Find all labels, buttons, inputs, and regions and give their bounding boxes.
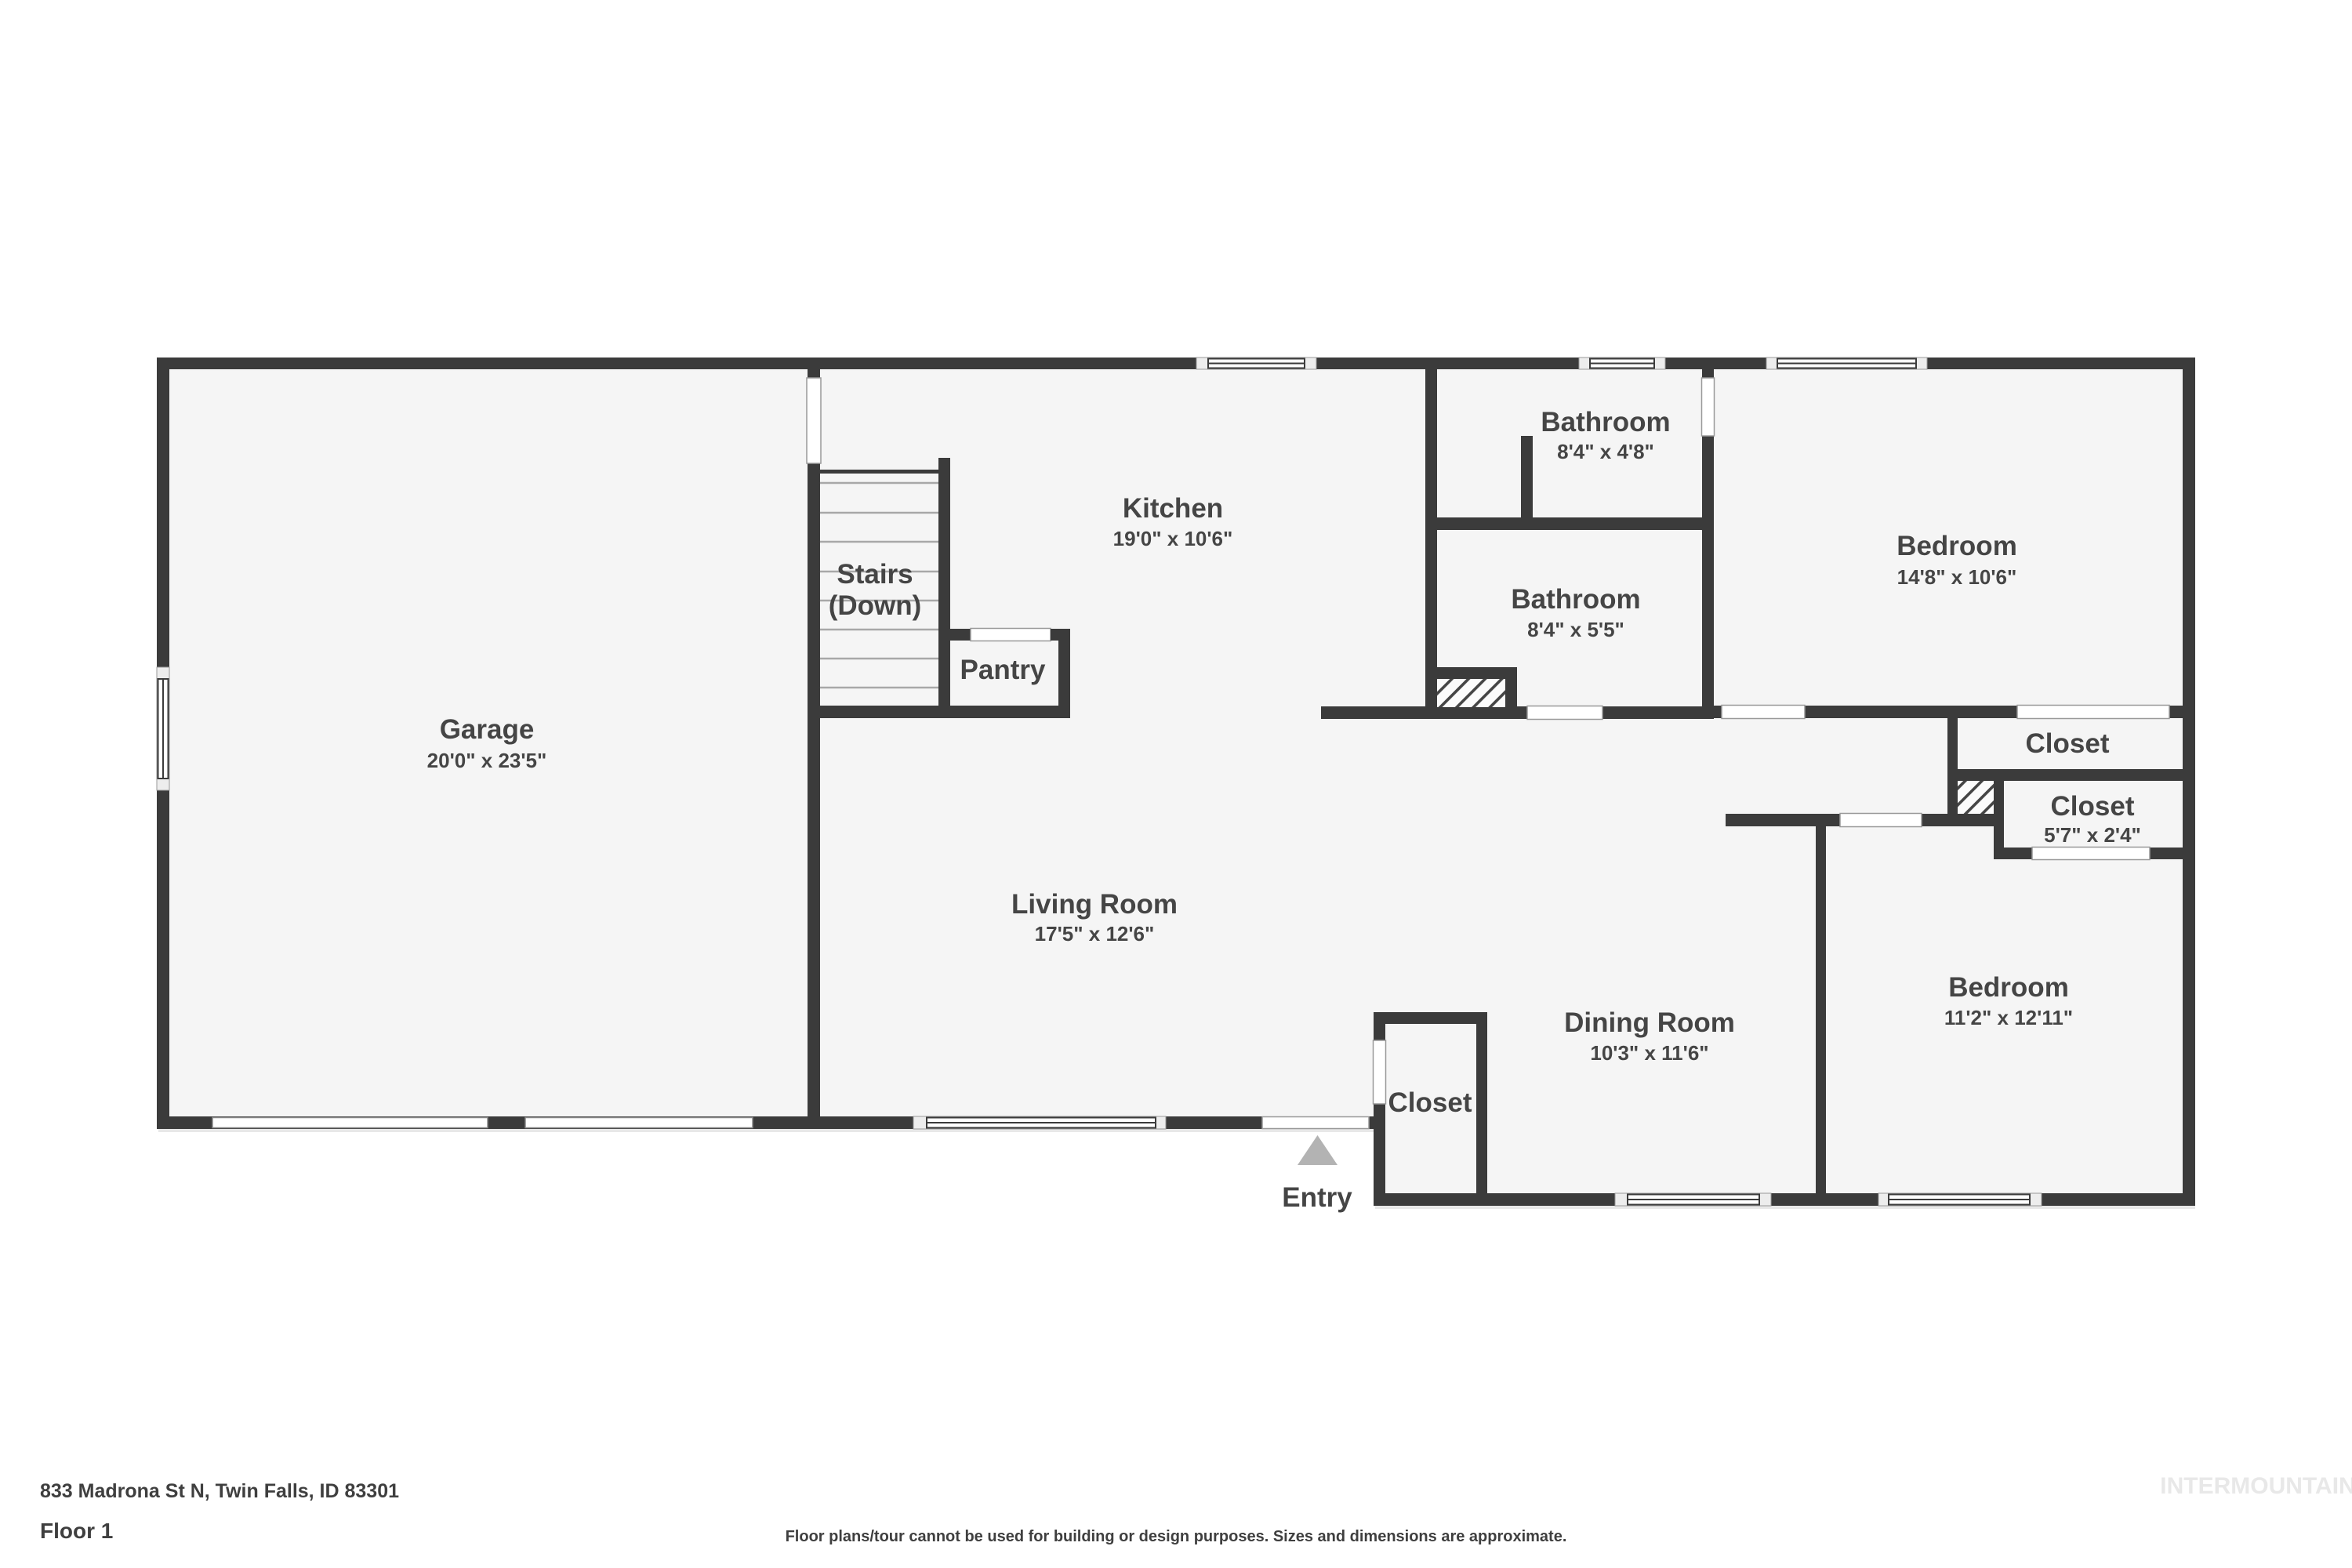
svg-text:19'0" x 10'6": 19'0" x 10'6" [1113, 527, 1233, 550]
svg-text:Stairs: Stairs [837, 559, 913, 590]
svg-text:Bedroom: Bedroom [1948, 972, 2069, 1003]
svg-text:Bathroom: Bathroom [1541, 407, 1670, 437]
svg-text:Closet: Closet [2051, 791, 2135, 822]
svg-text:833 Madrona St N, Twin Falls,: 833 Madrona St N, Twin Falls, ID 83301 [40, 1480, 399, 1502]
svg-text:5'7" x 2'4": 5'7" x 2'4" [2044, 823, 2141, 847]
svg-text:17'5" x 12'6": 17'5" x 12'6" [1035, 922, 1155, 946]
svg-text:8'4" x 5'5": 8'4" x 5'5" [1527, 618, 1624, 641]
svg-text:Kitchen: Kitchen [1123, 493, 1223, 524]
svg-text:Bathroom: Bathroom [1511, 584, 1640, 615]
svg-text:Closet: Closet [2026, 728, 2110, 759]
svg-text:Floor plans/tour cannot be use: Floor plans/tour cannot be used for buil… [786, 1528, 1567, 1545]
svg-text:10'3" x 11'6": 10'3" x 11'6" [1590, 1041, 1708, 1065]
svg-text:14'8" x 10'6": 14'8" x 10'6" [1897, 565, 2017, 589]
svg-text:Garage: Garage [440, 714, 535, 745]
svg-text:Entry: Entry [1282, 1182, 1352, 1213]
svg-text:20'0" x 23'5": 20'0" x 23'5" [427, 749, 547, 772]
svg-text:Bedroom: Bedroom [1896, 531, 2017, 561]
svg-text:8'4" x 4'8": 8'4" x 4'8" [1557, 440, 1654, 463]
svg-text:Closet: Closet [1388, 1087, 1472, 1118]
svg-text:(Down): (Down) [829, 590, 922, 621]
svg-text:Floor 1: Floor 1 [40, 1519, 113, 1543]
svg-text:INTERMOUNTAIN: INTERMOUNTAIN [2160, 1473, 2352, 1499]
svg-text:Dining Room: Dining Room [1564, 1007, 1735, 1038]
svg-text:Living Room: Living Room [1011, 889, 1178, 920]
svg-text:Pantry: Pantry [960, 655, 1046, 685]
svg-text:11'2" x 12'11": 11'2" x 12'11" [1944, 1006, 2073, 1029]
